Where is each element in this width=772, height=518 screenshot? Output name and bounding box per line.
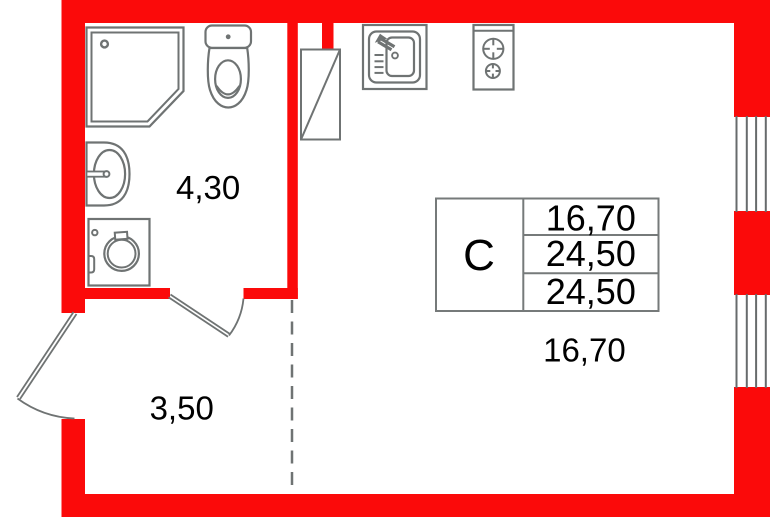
svg-text:4,30: 4,30 xyxy=(176,169,240,206)
svg-text:24,50: 24,50 xyxy=(546,271,636,312)
svg-text:24,50: 24,50 xyxy=(546,233,636,274)
svg-text:3,50: 3,50 xyxy=(150,389,214,426)
svg-text:С: С xyxy=(463,231,495,280)
svg-text:16,70: 16,70 xyxy=(543,332,626,369)
